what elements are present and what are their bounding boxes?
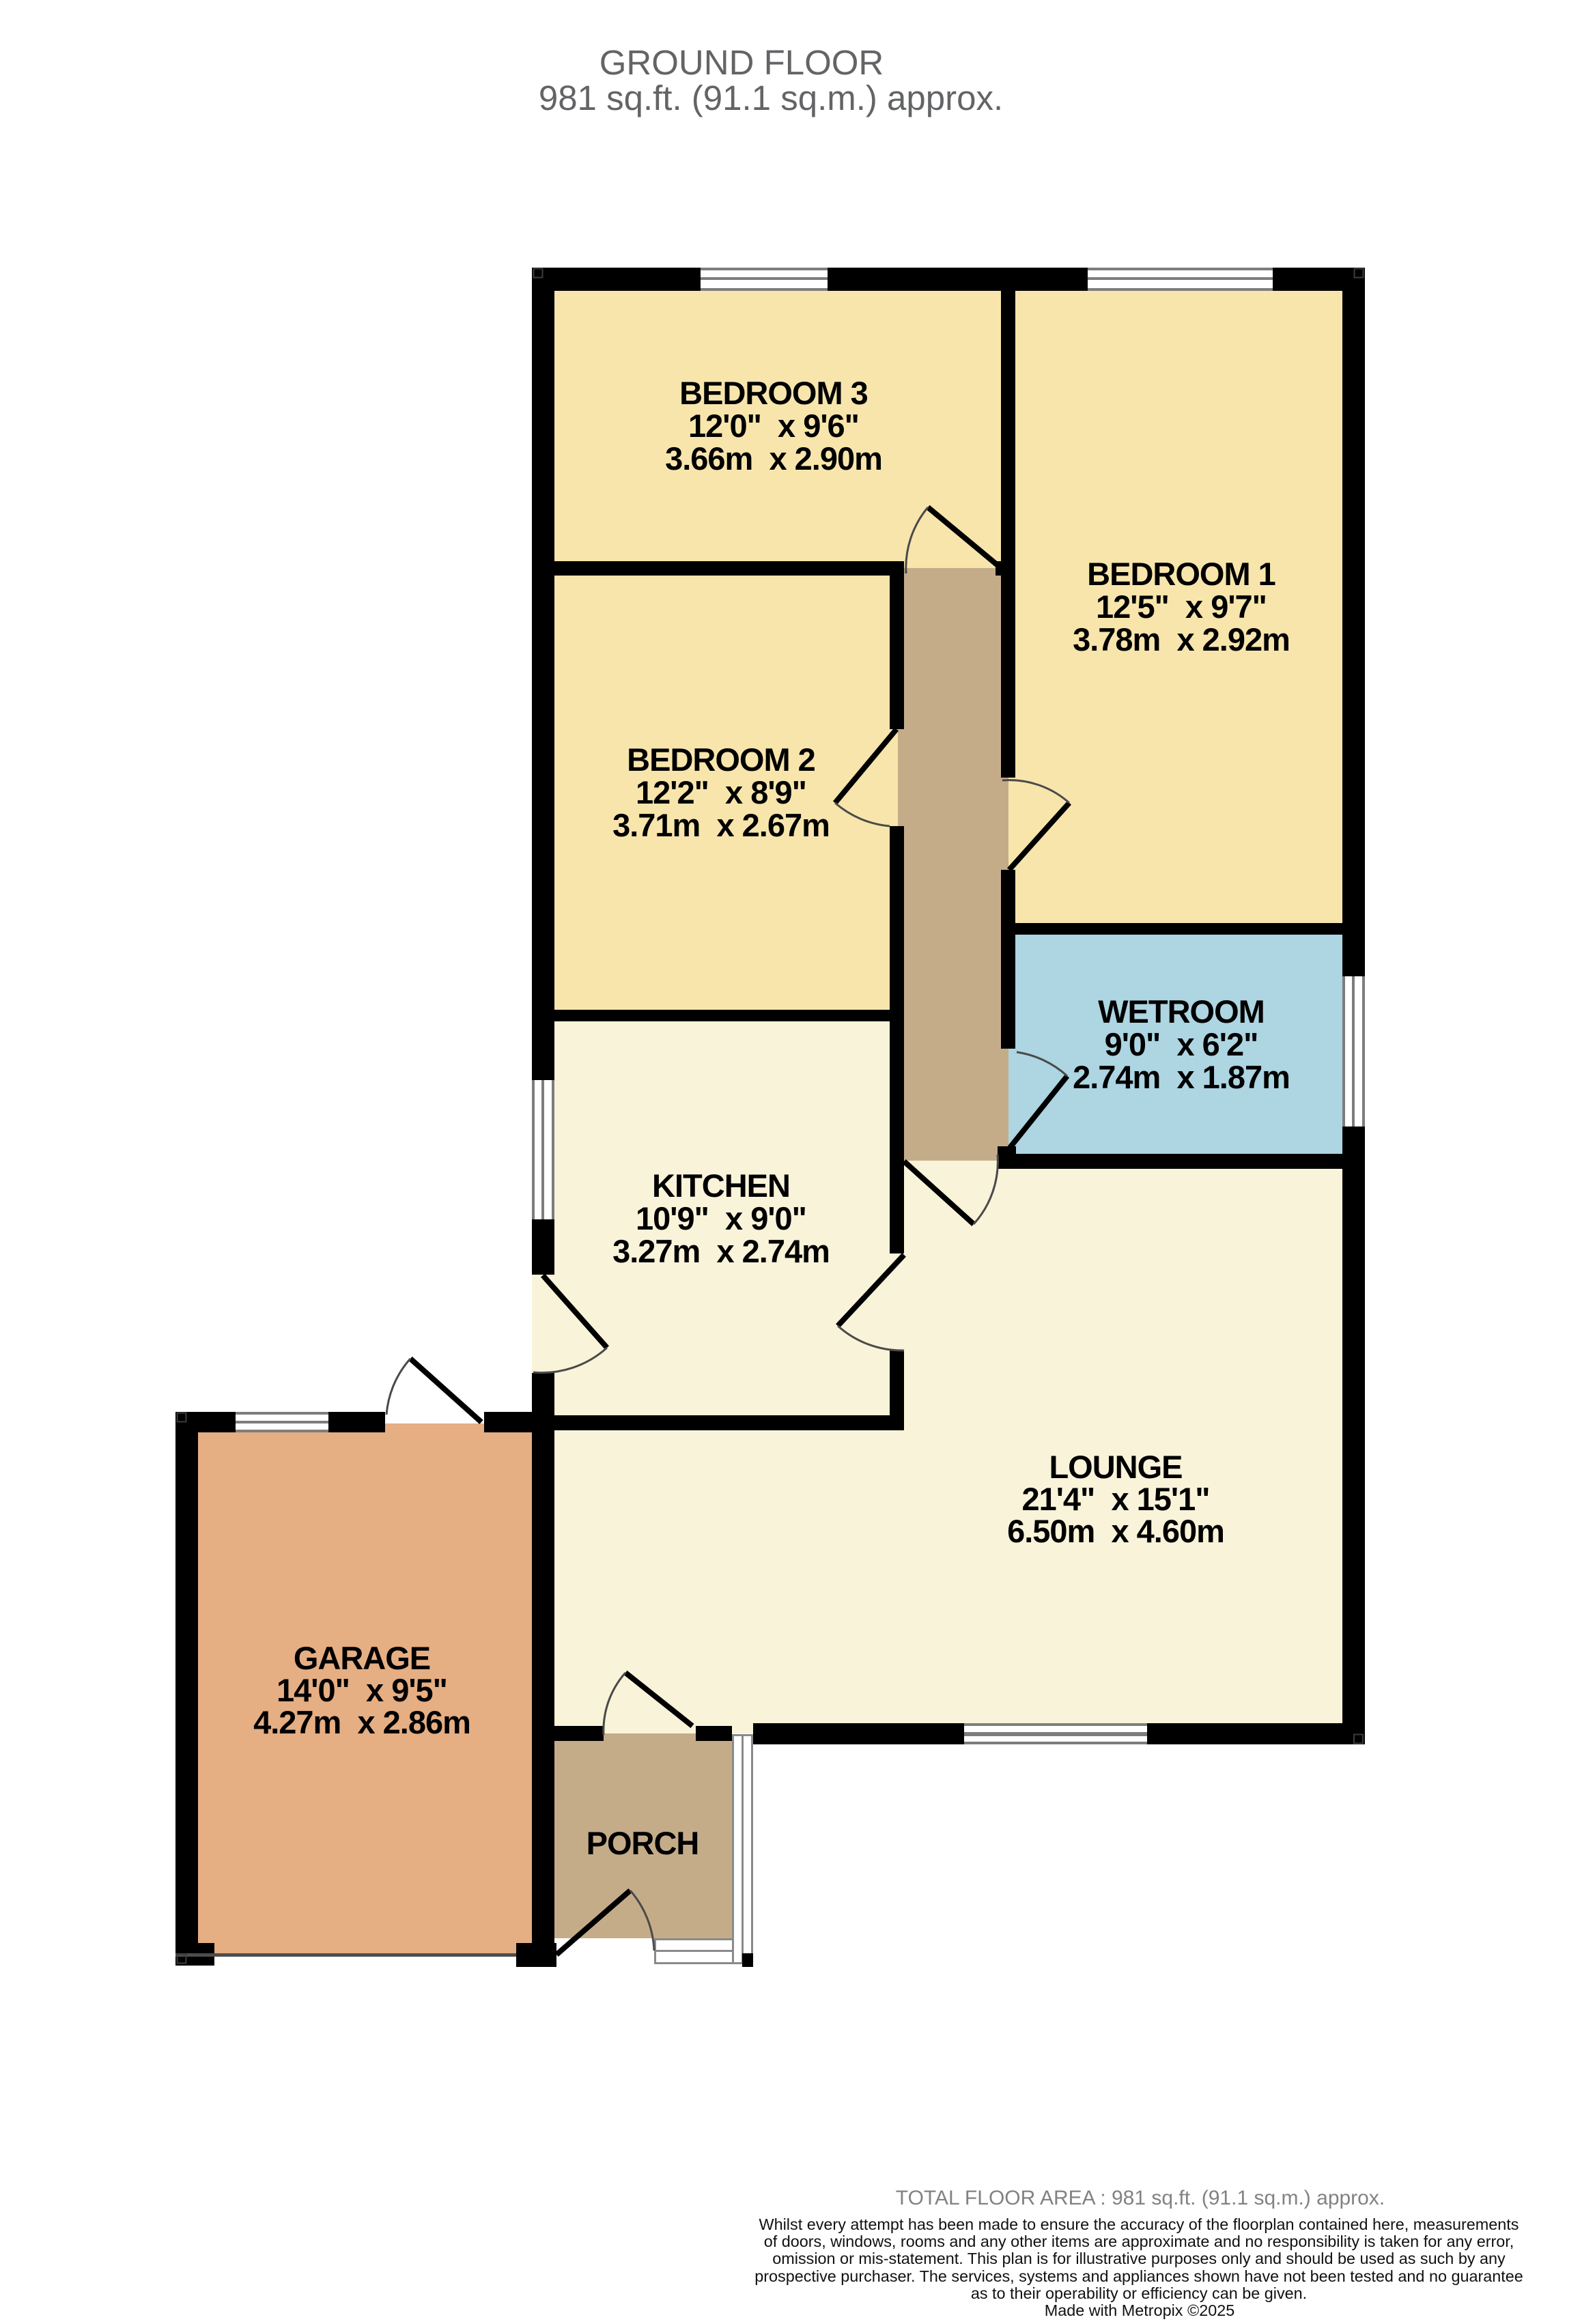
svg-text:WETROOM: WETROOM xyxy=(1098,993,1265,1030)
svg-text:Made with Metropix ©2025: Made with Metropix ©2025 xyxy=(1045,2301,1235,2319)
svg-text:of doors, windows, rooms and a: of doors, windows, rooms and any other i… xyxy=(764,2233,1514,2250)
svg-text:981 sq.ft. (91.1 sq.m.) approx: 981 sq.ft. (91.1 sq.m.) approx. xyxy=(539,79,1003,117)
svg-text:6.50m x 4.60m: 6.50m x 4.60m xyxy=(1007,1513,1224,1549)
svg-text:4.27m x 2.86m: 4.27m x 2.86m xyxy=(253,1704,470,1740)
svg-text:omission or mis-statement. Thi: omission or mis-statement. This plan is … xyxy=(772,2250,1506,2267)
svg-text:BEDROOM 2: BEDROOM 2 xyxy=(627,741,815,778)
svg-text:3.66m x 2.90m: 3.66m x 2.90m xyxy=(665,440,882,477)
svg-text:as to their operability or eff: as to their operability or efficiency ca… xyxy=(971,2284,1307,2302)
svg-text:21'4" x 15'1": 21'4" x 15'1" xyxy=(1021,1481,1209,1517)
svg-text:LOUNGE: LOUNGE xyxy=(1049,1449,1182,1485)
svg-text:GROUND FLOOR: GROUND FLOOR xyxy=(599,43,884,82)
svg-text:Whilst every attempt has been: Whilst every attempt has been made to en… xyxy=(759,2215,1519,2233)
svg-text:prospective purchaser. The ser: prospective purchaser. The services, sys… xyxy=(754,2267,1523,2285)
svg-text:3.78m x 2.92m: 3.78m x 2.92m xyxy=(1073,621,1290,657)
svg-text:GARAGE: GARAGE xyxy=(294,1640,430,1676)
svg-text:12'5" x 9'7": 12'5" x 9'7" xyxy=(1096,589,1267,625)
svg-text:3.71m x 2.67m: 3.71m x 2.67m xyxy=(612,807,830,843)
svg-text:KITCHEN: KITCHEN xyxy=(652,1167,790,1204)
svg-text:2.74m x 1.87m: 2.74m x 1.87m xyxy=(1073,1059,1290,1095)
svg-text:BEDROOM 1: BEDROOM 1 xyxy=(1087,556,1275,592)
svg-text:9'0" x 6'2": 9'0" x 6'2" xyxy=(1105,1026,1258,1062)
svg-text:3.27m x 2.74m: 3.27m x 2.74m xyxy=(612,1233,830,1269)
svg-text:12'0" x 9'6": 12'0" x 9'6" xyxy=(688,408,859,444)
svg-text:BEDROOM 3: BEDROOM 3 xyxy=(679,375,868,411)
svg-text:10'9" x 9'0": 10'9" x 9'0" xyxy=(636,1200,806,1236)
svg-text:PORCH: PORCH xyxy=(587,1825,699,1861)
svg-text:TOTAL FLOOR AREA : 981 sq.ft.: TOTAL FLOOR AREA : 981 sq.ft. (91.1 sq.m… xyxy=(896,2187,1385,2209)
svg-text:12'2" x 8'9": 12'2" x 8'9" xyxy=(636,774,806,810)
svg-text:14'0" x 9'5": 14'0" x 9'5" xyxy=(277,1672,447,1708)
